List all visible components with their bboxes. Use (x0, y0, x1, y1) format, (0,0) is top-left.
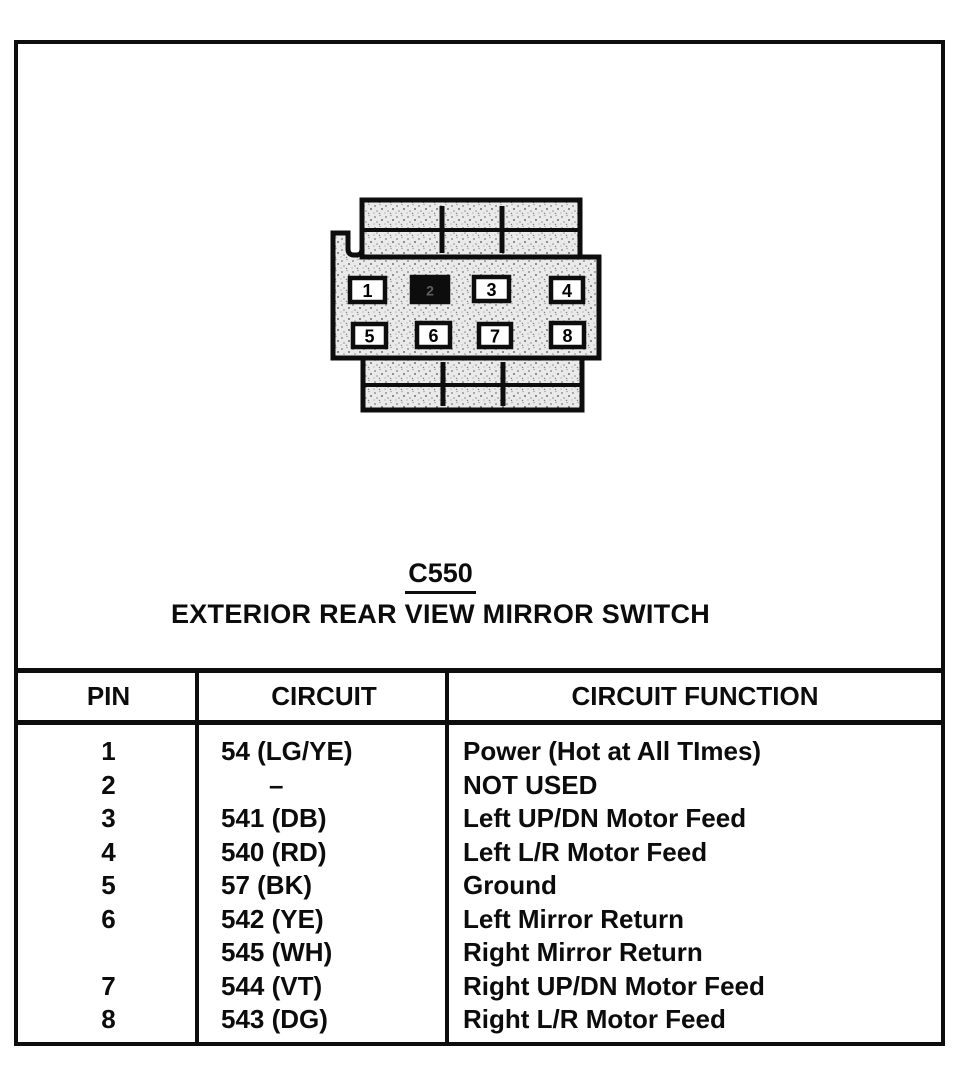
pin-box-3: 3 (474, 277, 509, 301)
table-row: 3 541 (DB) Left UP/DN Motor Feed (18, 802, 941, 836)
function-cell: Right UP/DN Motor Feed (449, 970, 941, 1004)
circuit-cell: 543 (DG) (199, 1003, 449, 1037)
pin-cell (18, 936, 199, 970)
pin-4-label: 4 (562, 281, 572, 301)
pin-cell: 6 (18, 903, 199, 937)
function-cell: Left L/R Motor Feed (449, 836, 941, 870)
table-row: 545 (WH) Right Mirror Return (18, 936, 941, 970)
circuit-cell: 54 (LG/YE) (199, 735, 449, 769)
table-row: 2 – NOT USED (18, 769, 941, 803)
circuit-cell: 541 (DB) (199, 802, 449, 836)
pin-box-5: 5 (353, 324, 386, 347)
pin-8-label: 8 (562, 326, 572, 346)
connector-bottom-tab (363, 358, 582, 410)
pin-cell: 1 (18, 735, 199, 769)
pin-cell: 3 (18, 802, 199, 836)
function-cell: Right Mirror Return (449, 936, 941, 970)
pin-cell: 2 (18, 769, 199, 803)
pin-box-8: 8 (551, 323, 584, 347)
pin-1-label: 1 (362, 281, 372, 301)
function-cell: Left Mirror Return (449, 903, 941, 937)
pin-cell: 7 (18, 970, 199, 1004)
table-row: 5 57 (BK) Ground (18, 869, 941, 903)
pin-box-6: 6 (417, 323, 450, 347)
pinout-table: PIN CIRCUIT CIRCUIT FUNCTION 1 54 (LG/YE… (14, 668, 945, 1046)
table-row: 4 540 (RD) Left L/R Motor Feed (18, 836, 941, 870)
pin-5-label: 5 (364, 327, 374, 347)
connector-top-tab (362, 200, 580, 257)
pin-7-label: 7 (490, 327, 500, 347)
function-cell: Left UP/DN Motor Feed (449, 802, 941, 836)
header-circuit-function: CIRCUIT FUNCTION (449, 681, 941, 712)
pin-box-7: 7 (479, 324, 511, 347)
table-body: 1 54 (LG/YE) Power (Hot at All TImes) 2 … (18, 725, 941, 1042)
connector-id: C550 (18, 558, 863, 594)
connector-diagram: 1 2 3 4 5 6 7 (318, 192, 608, 427)
connector-id-text: C550 (405, 558, 476, 594)
pin-cell: 5 (18, 869, 199, 903)
page-border-frame: 1 2 3 4 5 6 7 (14, 40, 945, 1046)
circuit-cell: – (199, 769, 449, 803)
connector-title: EXTERIOR REAR VIEW MIRROR SWITCH (18, 599, 863, 630)
header-pin: PIN (18, 681, 199, 712)
table-row: 1 54 (LG/YE) Power (Hot at All TImes) (18, 735, 941, 769)
function-cell: Ground (449, 869, 941, 903)
circuit-cell: 544 (VT) (199, 970, 449, 1004)
pin-6-label: 6 (428, 326, 438, 346)
pin-2-label: 2 (426, 283, 434, 299)
pin-3-label: 3 (486, 280, 496, 300)
pin-box-2-blocked: 2 (412, 277, 448, 302)
table-row: 6 542 (YE) Left Mirror Return (18, 903, 941, 937)
circuit-cell: 57 (BK) (199, 869, 449, 903)
header-circuit: CIRCUIT (199, 681, 449, 712)
function-cell: Right L/R Motor Feed (449, 1003, 941, 1037)
circuit-cell: 545 (WH) (199, 936, 449, 970)
pin-box-4: 4 (551, 278, 583, 302)
scanned-wiring-page: 1 2 3 4 5 6 7 (0, 0, 972, 1072)
circuit-cell: 540 (RD) (199, 836, 449, 870)
table-header-row: PIN CIRCUIT CIRCUIT FUNCTION (18, 673, 941, 725)
pin-cell: 8 (18, 1003, 199, 1037)
pin-box-1: 1 (350, 278, 385, 302)
table-row: 7 544 (VT) Right UP/DN Motor Feed (18, 970, 941, 1004)
pin-cell: 4 (18, 836, 199, 870)
function-cell: Power (Hot at All TImes) (449, 735, 941, 769)
function-cell: NOT USED (449, 769, 941, 803)
table-row: 8 543 (DG) Right L/R Motor Feed (18, 1003, 941, 1037)
circuit-cell: 542 (YE) (199, 903, 449, 937)
